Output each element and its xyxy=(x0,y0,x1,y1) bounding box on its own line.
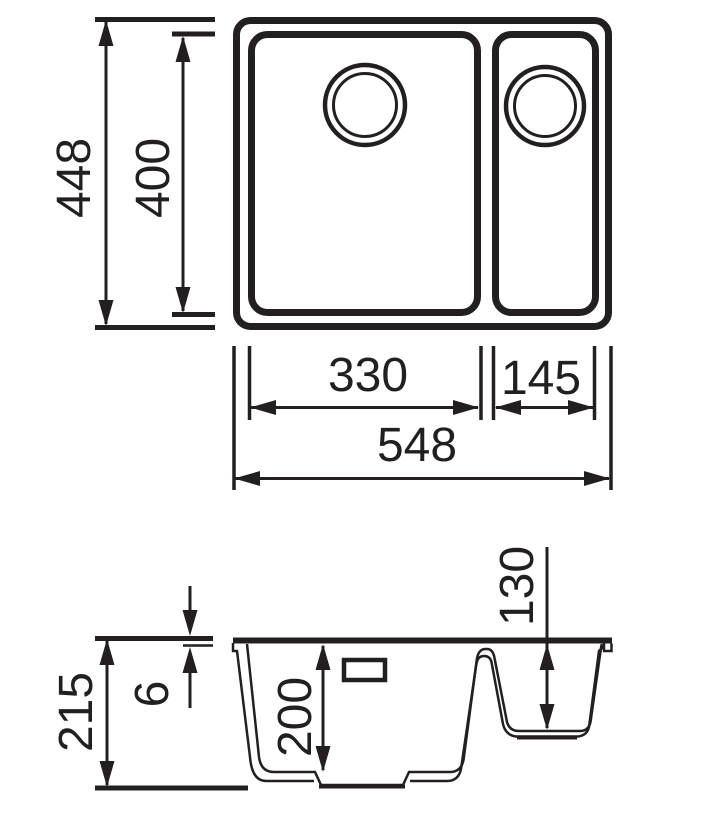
half-bowl-drain-inner xyxy=(515,76,576,137)
arrow-up-icon xyxy=(316,644,331,670)
arrow-down-icon xyxy=(540,704,555,730)
arrow-up-icon xyxy=(176,36,191,62)
arrow-left-icon xyxy=(234,471,260,486)
arrow-up-icon xyxy=(183,647,198,673)
drawing-root: 448 400 xyxy=(48,20,612,789)
dim-half-bowl-width: 145 xyxy=(495,352,594,415)
dim-overall-width: 548 xyxy=(234,419,610,486)
dim-half-bowl-width-label: 145 xyxy=(501,352,581,405)
dim-outer-height-label: 448 xyxy=(48,138,101,218)
dim-rim-thickness: 6 xyxy=(126,586,198,708)
dim-main-bowl-width: 330 xyxy=(250,349,479,415)
main-bowl-drain-outer xyxy=(325,65,405,145)
dim-main-bowl-depth: 200 xyxy=(269,644,331,772)
dim-half-bowl-depth-label: 130 xyxy=(491,546,544,626)
arrow-right-icon xyxy=(453,400,479,415)
dim-overall-depth-label: 215 xyxy=(50,672,103,752)
overflow-opening xyxy=(344,660,385,680)
arrow-right-icon xyxy=(584,471,610,486)
half-bowl-drain-outer xyxy=(506,67,584,145)
section-reference-lines xyxy=(95,639,248,789)
dim-overall-width-label: 548 xyxy=(377,419,457,472)
dim-main-bowl-depth-label: 200 xyxy=(269,677,322,757)
arrow-up-icon xyxy=(99,20,114,46)
arrow-down-icon xyxy=(99,300,114,326)
dim-main-bowl-width-label: 330 xyxy=(328,349,408,402)
arrow-left-icon xyxy=(250,400,276,415)
main-bowl-outline xyxy=(252,35,478,313)
dim-inner-height-label: 400 xyxy=(127,138,180,218)
sink-technical-drawing: 448 400 xyxy=(0,0,708,813)
arrow-up-icon xyxy=(540,644,555,670)
arrow-down-icon xyxy=(100,761,115,787)
arrow-up-icon xyxy=(100,639,115,665)
arrow-down-icon xyxy=(183,610,198,636)
main-bowl-drain-inner xyxy=(334,74,397,137)
sink-top-outline xyxy=(237,21,609,327)
dim-rim-thickness-label: 6 xyxy=(126,681,179,708)
dim-overall-depth: 215 xyxy=(50,639,115,787)
top-view: 448 400 xyxy=(48,20,611,491)
arrow-down-icon xyxy=(176,287,191,313)
dim-inner-height: 400 xyxy=(127,34,215,315)
section-view: 215 6 200 130 xyxy=(50,546,612,788)
